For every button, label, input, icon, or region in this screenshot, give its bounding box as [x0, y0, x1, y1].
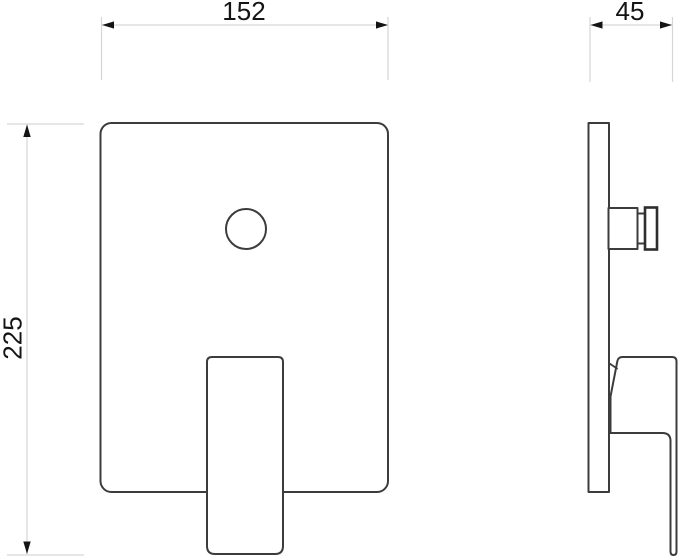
side-diverter-knob-base [609, 208, 638, 249]
dim-width-label: 152 [222, 0, 265, 26]
front-lever-handle [207, 357, 283, 554]
side-diverter-knob-cap [645, 208, 657, 250]
dim-depth-label: 45 [616, 0, 645, 26]
front-diverter-button [226, 209, 266, 249]
side-plate [589, 123, 610, 492]
front-view [101, 123, 389, 554]
technical-drawing: 152 45 225 [0, 0, 678, 558]
dim-height-label: 225 [0, 316, 28, 359]
